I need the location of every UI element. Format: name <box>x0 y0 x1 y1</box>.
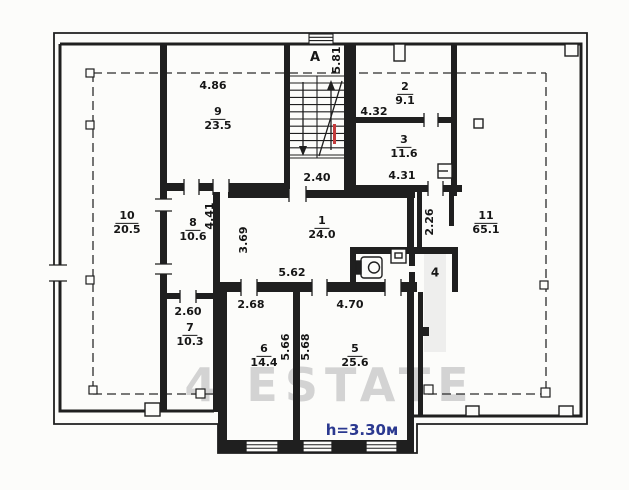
plan-linework <box>0 0 629 490</box>
pilaster <box>466 406 479 416</box>
vent-shaft <box>394 44 405 61</box>
ceiling-height-note: h=3.30м <box>326 423 399 439</box>
room-label-1: 124.0 <box>308 215 335 241</box>
room-label-2: 29.1 <box>395 81 415 107</box>
dim-room8-length: 4.41 <box>204 202 216 229</box>
room-label-4: 4 <box>431 267 439 280</box>
corner-pilaster <box>565 44 578 56</box>
dim-room3-width: 4.31 <box>388 170 415 182</box>
stairwell-label: A <box>310 51 320 65</box>
flight-red-mark <box>333 124 336 144</box>
dim-room1-depth: 3.69 <box>238 226 250 253</box>
dim-room1-width: 5.62 <box>278 267 305 279</box>
room-label-9: 923.5 <box>204 106 231 132</box>
column <box>474 119 483 128</box>
pilaster <box>559 406 573 416</box>
roof-hatch <box>309 34 333 44</box>
room-label-7: 710.3 <box>176 322 203 348</box>
sink-basin-icon <box>395 253 402 258</box>
dim-stair-flight: 5.81 <box>331 46 343 73</box>
floor-plan: 4 ESTATE <box>0 0 629 490</box>
outer-walls <box>54 33 587 453</box>
toilet-bowl-icon <box>369 262 380 273</box>
dim-room6-width: 2.68 <box>237 299 264 311</box>
room-label-3: 311.6 <box>390 134 417 160</box>
dim-room9-width: 4.86 <box>199 80 226 92</box>
room-label-11: 1165.1 <box>472 210 499 236</box>
dim-room5-width: 4.70 <box>336 299 363 311</box>
room-label-6: 614.4 <box>250 343 277 369</box>
door-openings <box>49 113 443 303</box>
window-sills <box>246 441 397 452</box>
wall-niche <box>145 403 160 416</box>
dim-room6-depth: 5.66 <box>280 333 292 360</box>
dim-stair-landing: 2.40 <box>303 172 330 184</box>
room-label-10: 1020.5 <box>113 210 140 236</box>
toilet-tank-icon <box>356 261 361 274</box>
dim-corridor-length: 2.26 <box>424 208 436 235</box>
dim-room2-width: 4.32 <box>360 106 387 118</box>
room-label-5: 525.6 <box>341 343 368 369</box>
dim-room5-depth: 5.68 <box>300 333 312 360</box>
dim-room7-width: 2.60 <box>174 306 201 318</box>
